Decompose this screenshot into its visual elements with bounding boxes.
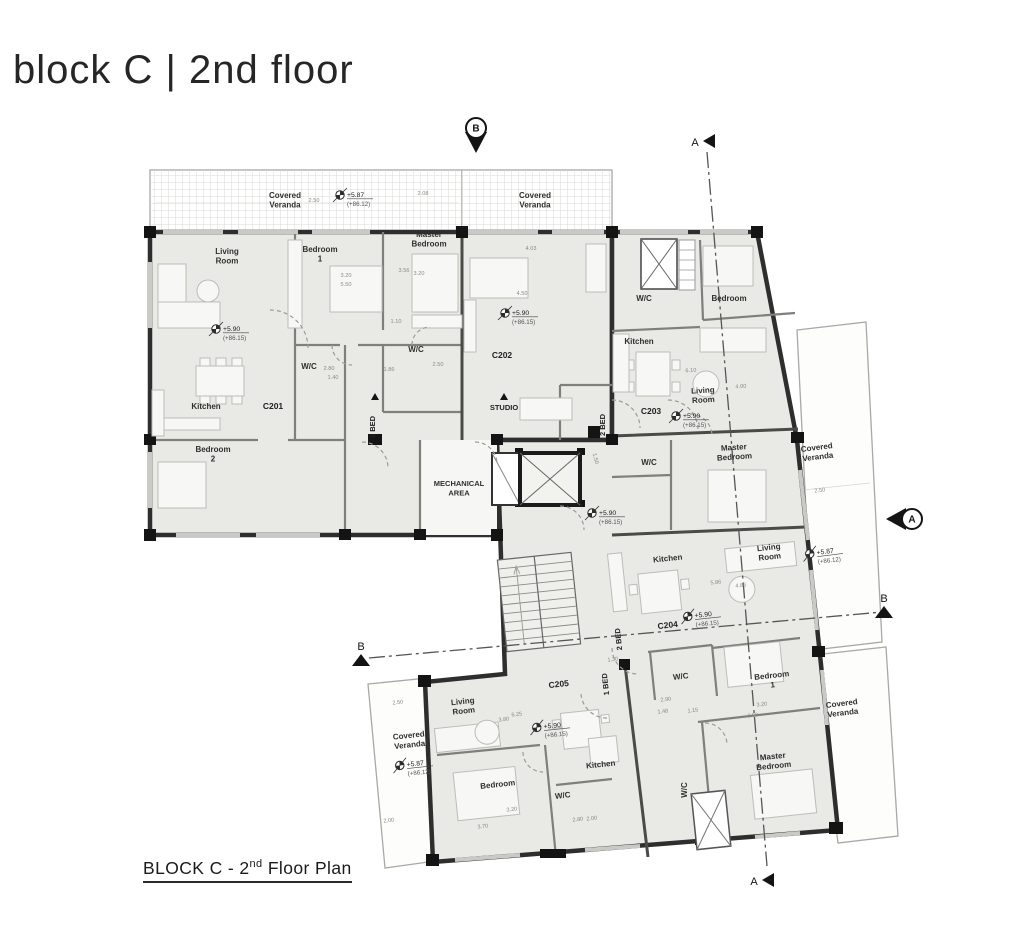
section-marker-a-top: A: [691, 137, 699, 149]
dimension-label: 2.08: [418, 191, 429, 197]
level-value: +5.90: [683, 413, 700, 420]
dimension-label: 1.40: [328, 375, 339, 381]
room-label: W/C: [636, 294, 652, 303]
level-value: +5.90: [599, 510, 616, 517]
dimension-label: 3.20: [506, 806, 517, 813]
sofa: [700, 328, 766, 352]
veranda-label: CoveredVeranda: [519, 191, 551, 210]
dimension-label: 4.86: [735, 582, 746, 589]
section-arrow: [762, 873, 774, 887]
light-well: [691, 790, 731, 849]
bed: [330, 266, 382, 312]
dimension-label: 6.10: [685, 368, 696, 375]
bed: [750, 769, 816, 819]
section-arrow: [703, 134, 715, 148]
dining-table: [636, 352, 670, 396]
dimension-label: 2.80: [572, 816, 583, 823]
dimension-label: 3.70: [477, 823, 488, 830]
section-pin-a-right-letter: A: [908, 515, 915, 526]
room-label: W/C: [408, 345, 424, 354]
bed: [412, 254, 458, 312]
coffee-table: [197, 280, 219, 302]
level-datum: (+86.15): [223, 335, 246, 342]
dimension-label: 5.50: [341, 282, 352, 288]
room-label: Bedroom: [711, 294, 746, 303]
unit-type-label: 3 BED: [368, 415, 377, 438]
level-value: +5.87: [347, 192, 364, 199]
unit-type-label: 2 BED: [598, 413, 607, 436]
room-label: LivingRoom: [215, 247, 239, 266]
bed: [158, 462, 206, 508]
veranda-top-left-hatch: [150, 170, 462, 232]
level-value: +5.90: [512, 310, 529, 317]
caption-suffix: Floor Plan: [263, 858, 352, 878]
room-label: W/C: [301, 362, 317, 371]
dimension-label: 4.50: [517, 291, 528, 297]
floors: [150, 232, 838, 862]
room-label: W/C: [673, 671, 690, 682]
veranda-label: CoveredVeranda: [392, 729, 426, 751]
staircase: [497, 552, 580, 651]
shelf-strip: [679, 240, 695, 290]
dimension-label: 3.20: [341, 273, 352, 279]
dimension-label: 2.00: [383, 817, 394, 824]
section-arrow: [352, 654, 370, 666]
dimension-label: 6.25: [511, 711, 522, 718]
dimension-label: 2.50: [392, 699, 403, 706]
kitchen-counter: [152, 390, 164, 436]
room-label: MasterBedroom: [411, 230, 446, 249]
dimension-label: 5.86: [710, 579, 721, 586]
dimension-label: 1.86: [384, 367, 395, 373]
floor-plan-drawing: B A A A B B LivingRoomBedroom1MasterBedr…: [0, 0, 1024, 931]
dimension-label: 3.80: [498, 716, 509, 723]
dimension-label: 2.50: [433, 362, 444, 368]
room-label: Kitchen: [624, 337, 653, 346]
level-datum: (+86.15): [599, 519, 622, 526]
sofa: [520, 398, 572, 420]
level-datum: (+86.15): [683, 422, 706, 429]
dimension-label: 2.00: [586, 815, 597, 822]
dimension-label: 4.03: [526, 246, 537, 252]
caption-prefix: BLOCK C - 2: [143, 858, 250, 878]
bed: [703, 246, 753, 286]
room-label: Kitchen: [191, 402, 220, 411]
dining-table: [196, 366, 244, 396]
wardrobe: [412, 315, 462, 328]
section-marker-a-bottom: A: [750, 876, 758, 888]
unit-type-label: STUDIO: [490, 403, 519, 412]
unit-label: C205: [548, 678, 570, 690]
level-datum: (+86.12): [347, 201, 370, 208]
dimension-label: 3.50: [747, 712, 758, 719]
dimension-label: 2.50: [309, 198, 320, 204]
wardrobe: [288, 240, 302, 328]
dimension-label: 1.15: [687, 707, 698, 714]
veranda-label: CoveredVeranda: [825, 697, 859, 719]
room-label: LivingRoom: [757, 542, 782, 563]
unit-label: C202: [492, 350, 513, 360]
unit-label: C204: [657, 619, 679, 631]
level-datum: (+86.15): [512, 319, 535, 326]
dimension-label: 1.30: [607, 656, 618, 663]
dimension-label: 4.00: [735, 384, 746, 391]
room-label: LivingRoom: [691, 385, 716, 405]
unit-label: C203: [641, 406, 662, 416]
level-value: +5.90: [223, 326, 240, 333]
dimension-label: 3.56: [399, 268, 410, 274]
section-pin-b-top-letter: B: [472, 124, 479, 135]
plan-caption: BLOCK C - 2nd Floor Plan: [143, 858, 352, 883]
dimension-label: 3.20: [414, 271, 425, 277]
dimension-label: 2.80: [324, 366, 335, 372]
dimension-label: 2.90: [660, 696, 671, 703]
section-marker-b-left: B: [357, 641, 364, 653]
veranda-label: CoveredVeranda: [269, 191, 301, 210]
room-label: W/C: [641, 458, 657, 467]
dimension-label: 3.20: [756, 701, 767, 708]
room-label: W/C: [680, 782, 689, 798]
room-label: LivingRoom: [451, 696, 476, 717]
section-marker-b-right: B: [880, 593, 887, 605]
veranda-label: CoveredVeranda: [800, 441, 834, 463]
caption-ordinal: nd: [250, 858, 263, 870]
dimension-label: 1.10: [391, 319, 402, 325]
unit-label: C201: [263, 401, 284, 411]
room-label: W/C: [555, 790, 572, 801]
dining-table: [638, 570, 682, 614]
wardrobe: [586, 244, 606, 292]
dimension-label: 1.48: [657, 708, 668, 715]
